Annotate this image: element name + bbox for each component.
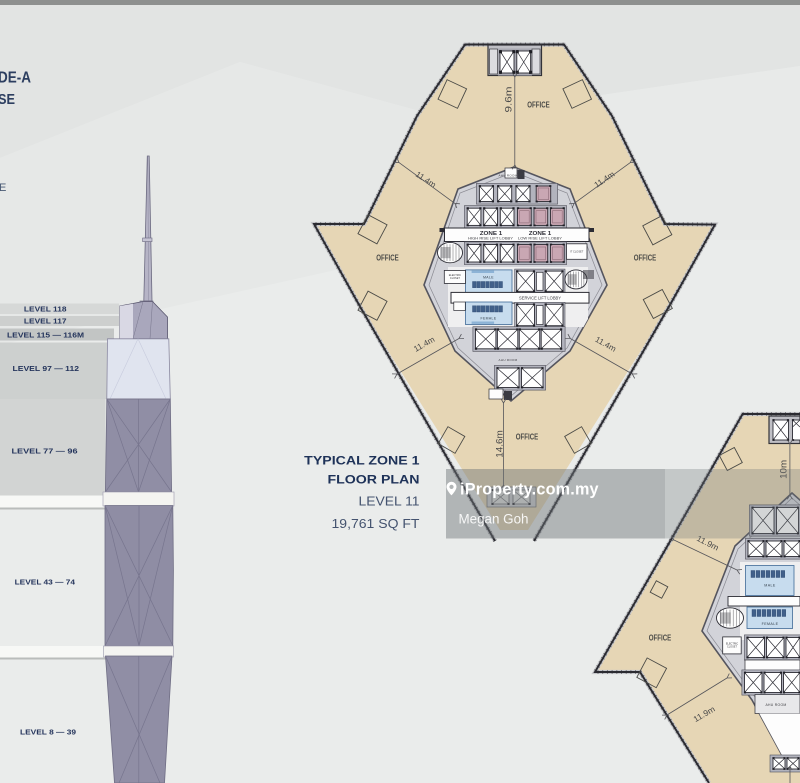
svg-text:CLOSET: CLOSET (727, 646, 737, 649)
svg-text:TYPICAL ZONE 1: TYPICAL ZONE 1 (304, 454, 420, 468)
svg-text:FEMALE: FEMALE (481, 317, 497, 321)
svg-text:FEMALE: FEMALE (762, 622, 779, 626)
svg-text:LOW RISE LIFT LOBBY: LOW RISE LIFT LOBBY (518, 235, 562, 240)
svg-text:OFFICE: OFFICE (527, 100, 550, 110)
svg-text:LEVEL 117: LEVEL 117 (24, 316, 67, 325)
svg-text:LEVEL 77 — 96: LEVEL 77 — 96 (12, 447, 78, 456)
svg-text:Megan Goh: Megan Goh (459, 512, 529, 528)
svg-text:LEVEL 8 — 39: LEVEL 8 — 39 (20, 728, 76, 737)
svg-text:LEVEL 97 — 112: LEVEL 97 — 112 (13, 364, 80, 373)
svg-text:IT CLOSET: IT CLOSET (570, 250, 584, 254)
svg-text:CLOSET: CLOSET (450, 277, 460, 280)
svg-text:SERVICE LIFT LOBBY: SERVICE LIFT LOBBY (519, 295, 561, 300)
svg-text:LEVEL 115 — 116M: LEVEL 115 — 116M (7, 331, 84, 340)
svg-text:AHU ROOM: AHU ROOM (499, 358, 518, 362)
svg-text:MALE: MALE (483, 275, 494, 279)
svg-text:E: E (0, 182, 6, 194)
svg-text:19,761 SQ FT: 19,761 SQ FT (332, 517, 420, 531)
svg-text:HIGH RISE LIFT LOBBY: HIGH RISE LIFT LOBBY (468, 235, 513, 240)
svg-text:OFFICE: OFFICE (376, 253, 399, 263)
svg-text:FLOOR PLAN: FLOOR PLAN (328, 472, 420, 486)
svg-text:14.6m: 14.6m (495, 430, 505, 458)
svg-text:9.6m: 9.6m (504, 87, 514, 113)
svg-text:LEVEL 118: LEVEL 118 (24, 304, 67, 313)
svg-text:SE: SE (0, 91, 15, 108)
svg-text:MALE: MALE (764, 584, 776, 588)
svg-text:AHU ROOM: AHU ROOM (765, 703, 786, 707)
svg-text:OFFICE: OFFICE (649, 633, 672, 643)
svg-text:OFFICE: OFFICE (634, 253, 657, 263)
svg-text:AHU ROOM: AHU ROOM (499, 174, 518, 178)
svg-text:DE-A: DE-A (0, 69, 31, 86)
svg-text:OFFICE: OFFICE (516, 432, 539, 442)
svg-text:LEVEL 11: LEVEL 11 (359, 495, 420, 509)
svg-text:LEVEL 43 — 74: LEVEL 43 — 74 (15, 578, 75, 587)
svg-text:iProperty.com.my: iProperty.com.my (460, 480, 599, 498)
